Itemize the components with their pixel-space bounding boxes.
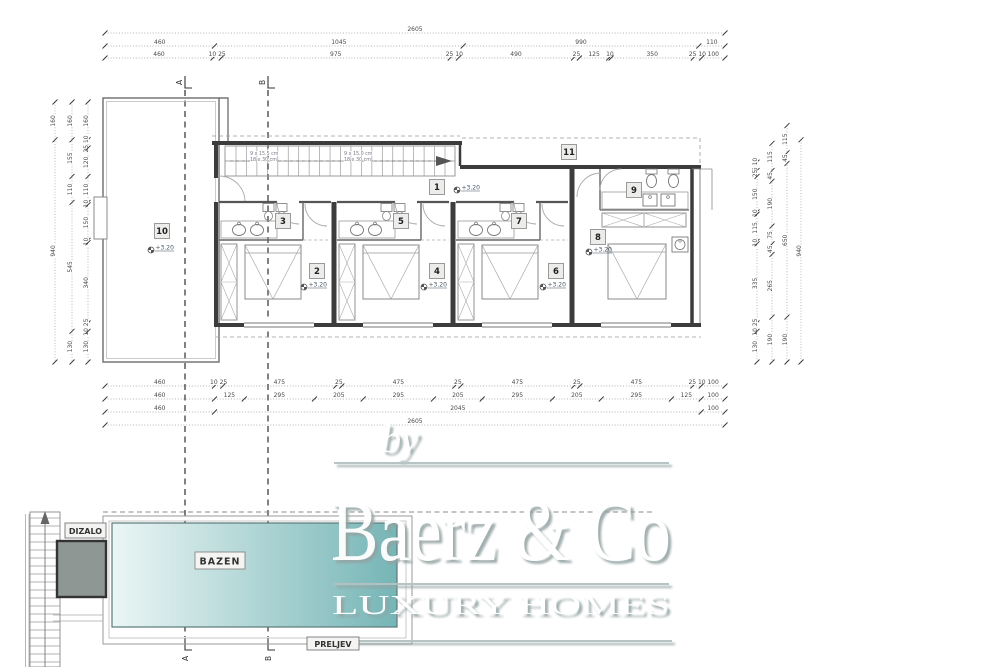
dimension-text: 150 [83,217,90,229]
toilet [500,204,511,212]
dimension-chain: 4601045990110 [103,39,728,48]
bidet [669,175,679,188]
dimension-text: 975 [330,51,342,58]
watermark: by Baerz & Co LUXURY HOMES [331,416,672,641]
dimension-text: 130 [83,341,90,353]
dimension-text: 45 [767,172,774,180]
dimension-text: 190 [767,198,774,210]
dimension-text: 100 [707,392,719,399]
dimension-text: 295 [631,392,643,399]
dimension-chain: 160940 [50,100,58,365]
dimension-text: 130 [752,341,759,353]
dimension-text: 25 [573,51,581,58]
room-5-badge: 5 [394,214,409,229]
stair-note: 18 x 30 cm [250,157,277,163]
dimension-text: 990 [575,39,587,46]
door-arc [305,204,327,226]
dimension-text: 475 [631,379,643,386]
dimension-text: 490 [510,51,522,58]
dimension-text: 120 [83,156,90,168]
dimension-chain: 11545650190 [782,123,790,364]
dimension-text: 100 [707,379,719,386]
dimension-text: 460 [154,392,166,399]
dimension-text: 110 [706,39,718,46]
dimension-text: 2605 [407,26,422,33]
dimension-chain: 16025 10120110101501034010 25130 [83,100,91,365]
floor-plan-sheet: 2605460104599011046010 2597525 104902512… [0,0,1000,667]
room-10-badge: 10+3.20 [148,224,174,254]
dimension-text: 110 [83,184,90,196]
room-2-badge: 2+3.20 [301,264,327,291]
dimension-text: 125 [681,392,693,399]
stair-note: 9 x 15.0 cm [344,151,373,157]
door-arc [542,204,564,226]
room-9-badge: 9 [627,183,642,198]
dimension-text: 460 [154,379,166,386]
sink [470,225,483,236]
dimension-text: 650 [782,234,789,246]
toilet [381,204,392,212]
dimension-text: 25 10 [688,379,705,386]
room-number: 1 [434,183,440,193]
dimension-text: 350 [646,51,658,58]
dimension-text: 475 [274,379,286,386]
room-number: 10 [156,227,168,237]
level-value: +3.20 [309,282,328,289]
dimension-text: 25 [573,379,581,386]
dimension-text: 115 [752,222,759,234]
door-arc [577,173,601,197]
dimension-chain: 46010 2547525475254752547525 10100 [103,379,728,388]
room-11-badge: 11 [562,145,577,160]
overflow-label-group: PRELJEV [307,637,359,650]
room-number: 8 [595,233,601,243]
dimension-text: 545 [67,261,74,273]
stair-up-arrow [41,511,50,524]
sink [251,225,264,236]
dimension-text: 25 [454,379,462,386]
dimension-text: 10 [606,51,614,58]
room-4-badge: 4+3.20 [421,264,447,291]
stair-note: 9 x 15.5 cm [250,151,279,157]
elevator-label: DIZALO [69,527,102,536]
dimension-text: 110 [67,184,74,196]
room-number: 3 [280,217,286,227]
dimension-text: 460 [154,39,166,46]
room-number: 9 [631,186,637,196]
sink [488,225,501,236]
dimension-text: 10 25 [209,51,226,58]
dimension-text: 45 [782,154,789,162]
door-arc [423,204,445,226]
room-number: 6 [553,267,559,277]
section-marker-bottom: A [181,655,190,661]
dimension-text: 25 [335,379,343,386]
dimension-text: 205 [571,392,583,399]
dimension-text: 190 [782,334,789,346]
wall-niche [94,197,107,239]
stair-direction-arrow [436,156,452,166]
dimension-text: 160 [67,115,74,127]
dimension-text: 460 [153,51,165,58]
room-3-badge: 3 [276,214,291,229]
room-6-badge: 6+3.20 [540,264,566,291]
level-value: +3.20 [429,282,448,289]
dimension-chain: 115451907545265190 [767,141,775,365]
level-value: +3.20 [548,282,567,289]
room-number: 7 [516,217,522,227]
dimension-text: 340 [83,277,90,289]
dimension-text: 130 [67,341,74,353]
dimension-text: 475 [512,379,524,386]
dimension-text: 295 [393,392,405,399]
sink [233,225,246,236]
pool-label: BAZEN [200,557,241,568]
dimension-text: 205 [333,392,345,399]
dimension-chain: 160155110545130 [67,100,75,365]
dimension-text: 265 [767,280,774,292]
room-number: 4 [434,267,440,277]
dimension-text: 205 [452,392,464,399]
dimension-text: 25 10 [446,51,463,58]
washbasin [675,240,685,250]
toilet [647,175,657,188]
dimension-text: 115 [767,151,774,163]
level-value: +3.20 [594,247,613,254]
overflow-label: PRELJEV [314,640,352,649]
dimension-text: 1045 [331,39,346,46]
room-number: 11 [563,148,575,158]
room-7-badge: 7 [512,214,527,229]
door-arc [600,169,621,190]
sink [369,225,382,236]
dimension-text: 940 [796,245,803,257]
dimension-text: 75 [767,231,774,239]
dimension-text: 115 [782,133,789,145]
door-arc [219,176,245,202]
dimension-text: 100 [708,51,720,58]
room-1-badge: 1+3.20 [430,180,481,195]
watermark-tagline: LUXURY HOMES [332,590,670,620]
dimension-text: 125 [224,392,236,399]
dimension-text: 335 [752,277,759,289]
dimension-text: 295 [512,392,524,399]
section-marker-top: B [258,80,267,85]
dimension-text: 160 [50,115,57,127]
watermark-brand: Baerz & Co [331,483,671,579]
level-value: +3.20 [462,185,481,192]
sink [351,225,364,236]
dimension-text: 155 [67,152,74,164]
plan-drawing: 2605460104599011046010 2597525 104902512… [0,0,1000,667]
section-marker-top: A [175,79,184,85]
dimension-chain: 460125295205295205295205295125100 [103,392,728,401]
room-8-badge: 8+3.20 [586,230,612,256]
dimension-text: 295 [274,392,286,399]
dimension-chain: 25 1025150101151033510 25130 [752,158,760,365]
room-number: 5 [398,217,404,227]
stair-note: 18 x 30 cm [344,157,371,163]
dimension-text: 460 [154,405,166,412]
dimension-chain: 4602045100 [103,405,728,414]
dimension-text: 125 [588,51,600,58]
dimension-text: 160 [83,115,90,127]
section-marker-bottom: B [264,656,273,661]
level-value: +3.20 [156,245,175,252]
watermark-by: by [381,416,419,461]
dimension-text: 10 25 [210,379,227,386]
dimension-chain: 46010 2597525 10490251251035025 10100 [103,51,728,60]
room-number: 2 [314,267,320,277]
dimension-text: 475 [393,379,405,386]
dimension-text: 100 [707,405,719,412]
dimension-chain: 940 [796,137,804,364]
dimension-text: 2045 [450,405,465,412]
dimension-text: 25 10 [689,51,706,58]
dimension-chain: 2605 [103,26,728,35]
dimension-text: 150 [752,188,759,200]
elevator-shaft [57,541,106,597]
dimension-text: 45 [767,245,774,253]
dimension-text: 940 [50,245,57,257]
dimension-text: 190 [767,334,774,346]
dimension-text: 25 [752,169,759,177]
